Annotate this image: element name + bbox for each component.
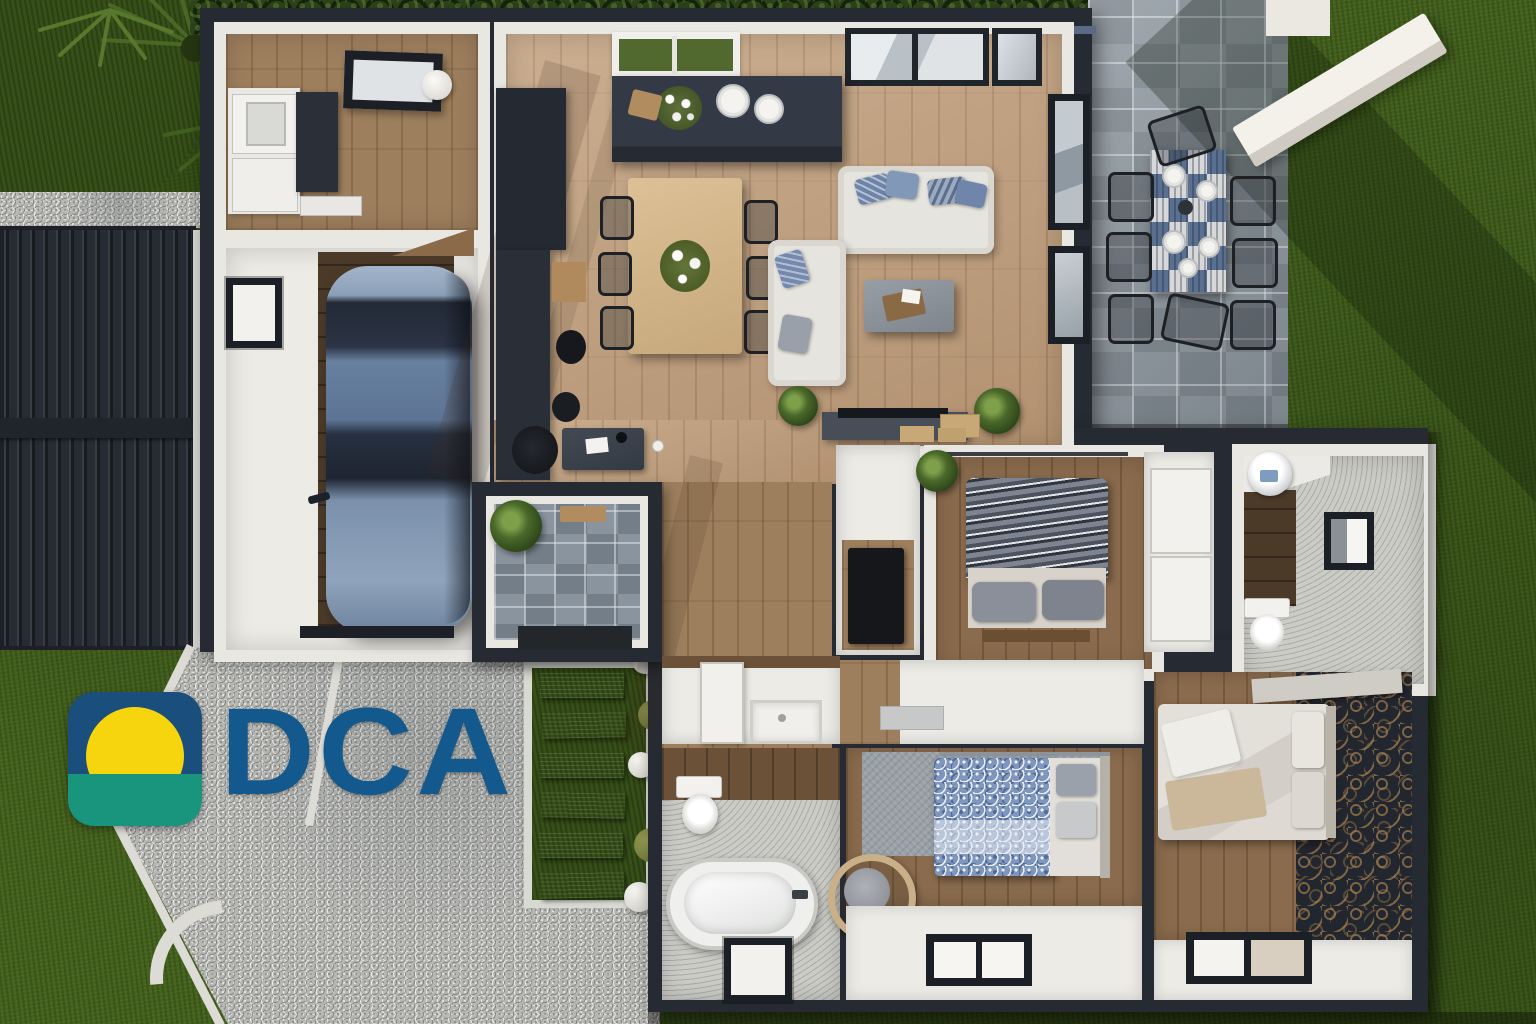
shower-tray [750,700,822,744]
stepping-stone [542,711,626,738]
courtyard-plant [490,500,542,552]
toilet-bowl-s [682,794,718,834]
stepping-stone [541,791,625,818]
se-bed-headboard [1326,706,1336,838]
patio-plate [1196,180,1218,202]
laundry-appliance [300,196,362,216]
island-plate [716,84,750,118]
plant-pot [974,388,1020,434]
right-bath-wood-floor [1244,490,1296,606]
tv-panel [838,408,948,418]
carport-roof [0,226,196,650]
desk-mug [652,440,664,452]
south-bed-rail [940,752,1110,756]
stepping-stone [540,871,624,898]
stepping-stone [539,832,623,858]
dining-chair [600,306,634,350]
washer-door [246,102,286,146]
master-door-rail [938,452,1128,456]
desk-paper [585,437,608,454]
east-window-lower [1048,246,1090,344]
dining-chair [600,196,634,240]
laundry-pouf [422,70,452,100]
desk-chair [512,426,558,474]
kitchen-stool [552,392,580,422]
island-flowers [656,86,702,130]
south-bath-window [724,938,792,1002]
courtyard-bench [560,506,606,522]
shelf-box [900,426,934,442]
dining-chair [744,200,778,244]
south-bed-headboard [1100,756,1110,878]
tall-cabinet-dark [296,92,338,192]
shelf-box [938,428,966,442]
corridor-mat [880,706,944,730]
se-bed-pillow [1292,712,1324,768]
house-south-shadow [648,1012,1536,1024]
patio-chair [1230,176,1276,226]
desk-lamp [616,432,627,443]
patio-plate [1178,258,1198,278]
wc-wood-wall [662,656,840,668]
se-bed-pillow [1292,772,1324,828]
south-bed-pillow [1056,802,1096,838]
logo-wordmark: DCA [220,690,514,814]
gravel-strip-top [0,192,200,228]
master-pillow [1042,580,1104,620]
house-east-shadow [1428,432,1444,1012]
closet-door [1150,468,1212,554]
floorplan-render: DCA [0,0,1536,1024]
shower-drain [778,714,786,722]
sliding-door-mullion [912,32,918,82]
dining-centerpiece [660,240,710,292]
island-plate [754,94,784,124]
sofa-pillow-blue [884,170,919,200]
coffee-table-papers [901,289,921,304]
closet-door [1150,556,1212,642]
south-bed-pillow [1056,764,1096,796]
patio-centerpiece [1178,200,1193,215]
master-pillow [972,582,1036,622]
right-bath-window [1324,512,1374,570]
se-bedroom-window-mullion [1244,938,1251,978]
east-window-upper [1048,94,1090,230]
wc-cabinet [700,662,744,744]
kitchen-stool [556,330,586,364]
patio-plate [1162,164,1186,188]
kitchen-window-mullion [672,36,677,74]
carport-roof-band [0,418,196,438]
sink-towel [1260,470,1278,482]
toilet-bowl [1250,614,1284,650]
bathtub-basin [684,872,796,934]
stepping-stone [540,672,624,698]
fixed-glass-panel [992,28,1042,86]
plant-pot [778,386,818,426]
patio-chair [1232,238,1278,288]
kitchen-cabinets-upper [496,88,566,250]
logo-sky-shape [68,692,202,774]
logo-sea-shape [68,774,202,826]
south-bedroom-window-mullion [976,940,982,980]
stepping-stone [540,752,624,778]
patio-chair [1230,300,1276,350]
south-bed-duvet-fold [934,820,1054,854]
patio-chair [1106,232,1152,282]
corridor-wood-junction [836,660,900,744]
logo-sun-icon [86,707,184,774]
master-bed-duvet [966,478,1108,578]
bathtub-faucet [792,890,808,899]
pergola-post [1266,0,1330,36]
dryer [232,158,298,212]
patio-plate [1162,230,1186,254]
patio-chair [1108,294,1154,344]
patio-chair [1108,172,1154,222]
south-bed-duvet [934,758,1054,876]
courtyard-doormat [518,626,632,650]
dining-chair [598,252,632,296]
kitchen-shelf-wood [552,262,586,302]
master-plant [916,450,958,492]
dca-logo [68,692,202,826]
bed-end-bench [982,630,1090,642]
garage-door-mat [300,626,454,638]
garage-window [226,278,282,348]
patio-plate [1198,236,1220,258]
wardrobe-dark [848,548,904,644]
sofa-pillow-grey [777,314,813,355]
